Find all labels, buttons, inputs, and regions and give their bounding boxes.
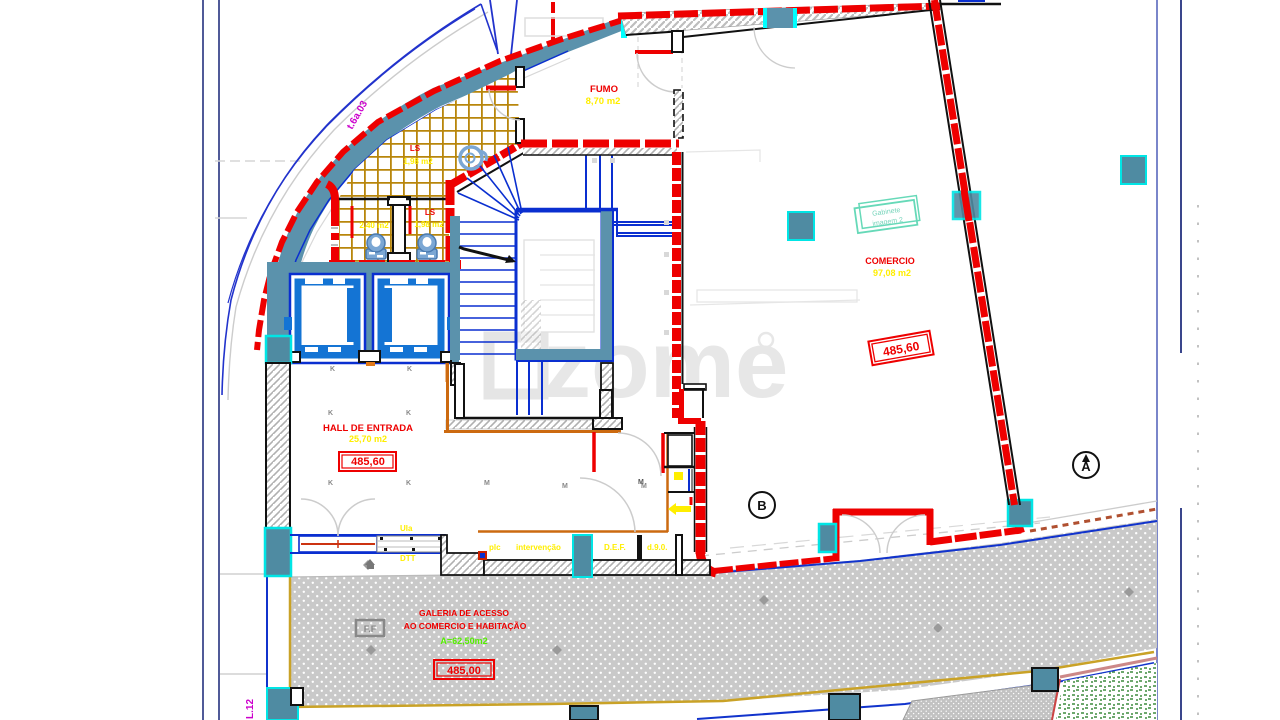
svg-text:zome: zome (543, 311, 788, 418)
svg-text:d.9.0.: d.9.0. (647, 543, 667, 552)
svg-text:AO COMERCIO E HABITAÇÃO: AO COMERCIO E HABITAÇÃO (404, 621, 527, 631)
svg-text:K: K (330, 366, 335, 373)
svg-text:COMERCIO: COMERCIO (865, 256, 915, 266)
svg-text:K: K (328, 480, 333, 487)
svg-text:F.F: F.F (364, 624, 377, 634)
svg-text:plc: plc (489, 543, 501, 552)
svg-text:1,98 m2: 1,98 m2 (403, 157, 433, 166)
svg-text:2,40 m2: 2,40 m2 (359, 221, 389, 230)
svg-text:K: K (328, 410, 333, 417)
svg-text:485,00: 485,00 (447, 665, 481, 677)
svg-text:97,08 m2: 97,08 m2 (873, 268, 911, 278)
svg-text:FUMO: FUMO (590, 84, 618, 95)
svg-text:K: K (406, 410, 411, 417)
svg-text:M: M (562, 483, 568, 490)
svg-text:485,60: 485,60 (351, 456, 385, 468)
svg-text:L.12: L.12 (245, 699, 256, 719)
svg-text:LS: LS (425, 208, 436, 217)
svg-text:25,70 m2: 25,70 m2 (349, 434, 387, 444)
svg-text:K: K (407, 366, 412, 373)
svg-text:1,98 m2: 1,98 m2 (414, 220, 444, 229)
svg-text:M: M (638, 479, 644, 486)
svg-text:K: K (406, 480, 411, 487)
svg-text:HALL DE ENTRADA: HALL DE ENTRADA (323, 423, 413, 434)
svg-text:GALERIA DE ACESSO: GALERIA DE ACESSO (419, 608, 509, 618)
svg-text:intervenção: intervenção (516, 543, 561, 552)
svg-text:D.E.F.: D.E.F. (604, 543, 626, 552)
svg-text:A=62,50m2: A=62,50m2 (440, 636, 487, 646)
svg-text:Ula: Ula (400, 524, 413, 533)
svg-text:8,70 m2: 8,70 m2 (586, 96, 621, 107)
svg-text:DTT: DTT (400, 554, 416, 563)
svg-text:M: M (484, 480, 490, 487)
svg-text:LS: LS (410, 144, 421, 153)
svg-text:B: B (757, 498, 766, 513)
